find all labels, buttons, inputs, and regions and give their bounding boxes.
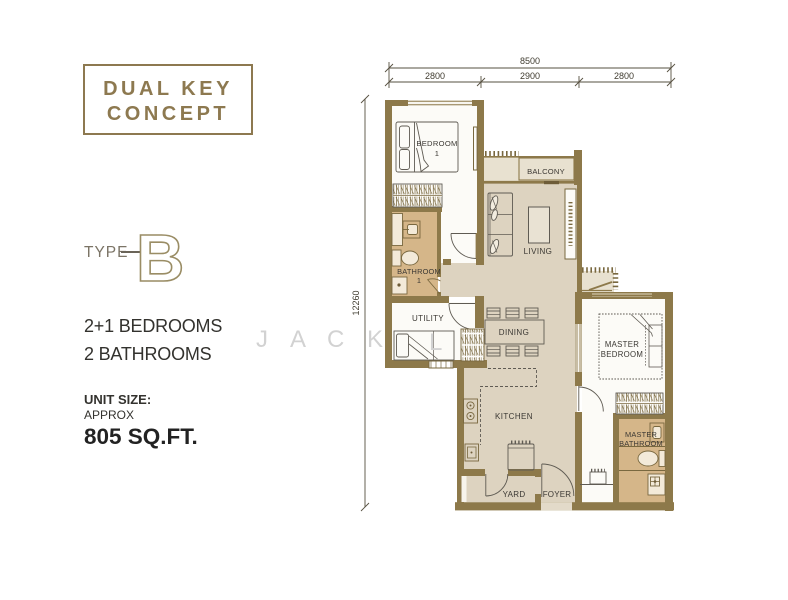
- svg-text:A: A: [290, 326, 306, 353]
- svg-text:2800: 2800: [614, 71, 634, 81]
- svg-text:B: B: [136, 221, 184, 296]
- svg-text:805 SQ.FT.: 805 SQ.FT.: [84, 424, 198, 449]
- svg-text:C: C: [327, 326, 344, 353]
- svg-text:BALCONY: BALCONY: [527, 167, 565, 176]
- svg-text:FOYER: FOYER: [543, 490, 572, 499]
- svg-text:KITCHEN: KITCHEN: [495, 412, 533, 421]
- svg-text:UTILITY: UTILITY: [412, 314, 444, 323]
- svg-text:UNIT SIZE:: UNIT SIZE:: [84, 392, 151, 407]
- svg-text:2900: 2900: [520, 71, 540, 81]
- svg-text:1: 1: [417, 276, 421, 285]
- svg-text:8500: 8500: [520, 56, 540, 66]
- svg-text:BEDROOM: BEDROOM: [416, 139, 457, 148]
- svg-text:BEDROOM: BEDROOM: [601, 350, 643, 359]
- svg-text:K: K: [367, 326, 383, 353]
- svg-text:CONCEPT: CONCEPT: [107, 103, 229, 125]
- svg-text:J: J: [256, 326, 268, 353]
- svg-text:1: 1: [435, 149, 440, 158]
- svg-text:2800: 2800: [425, 71, 445, 81]
- svg-text:BATHROOM: BATHROOM: [397, 267, 441, 276]
- svg-text:L: L: [429, 329, 442, 356]
- svg-text:LIVING: LIVING: [524, 247, 553, 256]
- svg-text:12260: 12260: [351, 290, 361, 315]
- svg-text:MASTER: MASTER: [625, 430, 657, 439]
- svg-text:MASTER: MASTER: [605, 340, 639, 349]
- svg-text:2+1 BEDROOMS: 2+1 BEDROOMS: [84, 316, 222, 336]
- svg-text:BATHROOM: BATHROOM: [619, 439, 663, 448]
- svg-text:2 BATHROOMS: 2 BATHROOMS: [84, 344, 212, 364]
- svg-text:YARD: YARD: [503, 490, 526, 499]
- svg-text:DINING: DINING: [499, 328, 529, 337]
- svg-text:APPROX: APPROX: [84, 408, 134, 422]
- svg-text:DUAL KEY: DUAL KEY: [103, 78, 233, 100]
